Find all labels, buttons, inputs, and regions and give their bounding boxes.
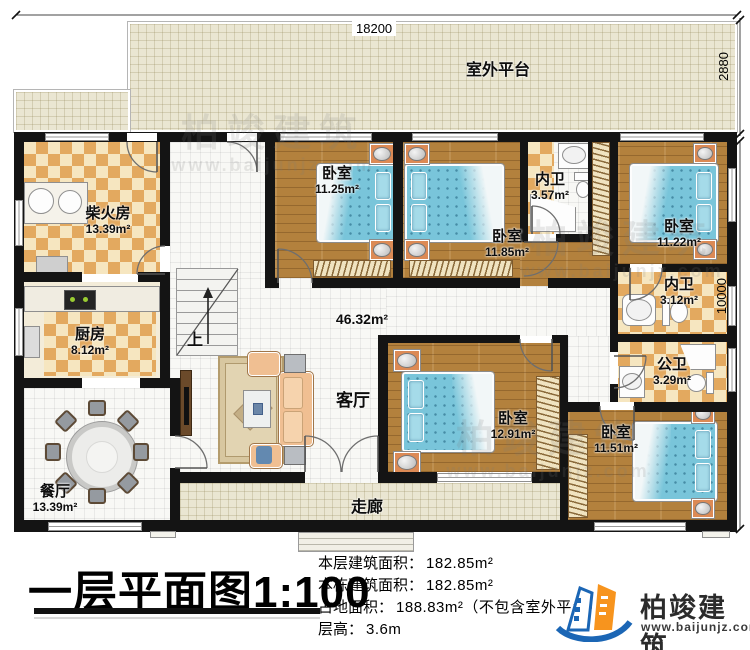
- window: [48, 522, 142, 531]
- dining-chair: [133, 443, 149, 461]
- wall: [265, 142, 275, 288]
- wall: [610, 272, 618, 342]
- sofa: [279, 372, 313, 446]
- wall: [610, 142, 618, 264]
- room-label-gongwei: 公卫 3.29m²: [646, 357, 698, 387]
- dim-top: 18200: [352, 21, 396, 36]
- sink-icon: [626, 299, 652, 321]
- wall: [170, 472, 305, 483]
- wall: [610, 334, 737, 342]
- throw-blanket: [256, 446, 272, 464]
- wall: [548, 278, 610, 288]
- window: [45, 133, 109, 141]
- room-label-bedroom1: 卧室 11.25m²: [298, 166, 376, 196]
- hallway-vertical-floor: [568, 336, 610, 402]
- outdoor-platform-floor-left: [14, 90, 130, 132]
- cooktop-icon: [64, 290, 96, 310]
- side-table: [284, 446, 306, 465]
- room-label-bedroom4: 卧室 12.91m²: [483, 411, 543, 441]
- nightstand: [370, 144, 394, 164]
- dining-chair: [88, 400, 106, 416]
- nightstand: [692, 499, 714, 518]
- window: [728, 286, 736, 326]
- wall: [556, 234, 592, 242]
- door-opening: [227, 133, 257, 141]
- tv-cabinet: [180, 370, 192, 436]
- wall: [588, 142, 592, 234]
- window: [620, 133, 704, 141]
- nightstand: [394, 452, 420, 473]
- nightstand: [394, 350, 420, 371]
- entry-steps: [298, 532, 414, 552]
- room-label-corridor: 走廊: [336, 499, 398, 517]
- stoop: [150, 531, 176, 538]
- room-label-firewood: 柴火房 13.39m²: [62, 206, 154, 236]
- door-opening: [127, 133, 157, 141]
- wall: [160, 142, 170, 246]
- window: [15, 308, 23, 356]
- brand-building-icon: [552, 580, 636, 642]
- room-label-neiwei1: 内卫 3.57m²: [524, 172, 576, 202]
- wall: [170, 378, 180, 436]
- wall: [662, 264, 737, 272]
- window: [728, 348, 736, 392]
- wall: [552, 335, 568, 343]
- wall: [393, 142, 403, 288]
- wardrobe: [409, 260, 513, 277]
- dim-platform-depth: 2880: [716, 52, 731, 81]
- wall: [160, 274, 170, 378]
- nightstand: [370, 240, 394, 260]
- nightstand: [405, 144, 429, 164]
- bed: [402, 372, 494, 452]
- room-label-kitchen: 厨房 8.12m²: [50, 327, 130, 357]
- wall: [140, 378, 170, 388]
- wall: [265, 278, 279, 288]
- wall: [24, 272, 82, 282]
- floor-plan-page: 室外平台: [0, 0, 750, 650]
- stove-ring-icon: [28, 188, 54, 214]
- wardrobe: [592, 142, 610, 256]
- window: [412, 133, 498, 141]
- fridge-icon: [24, 326, 40, 358]
- window: [15, 200, 23, 246]
- wall: [610, 384, 618, 402]
- hallway-floor: [386, 286, 610, 336]
- wall: [568, 402, 600, 412]
- room-label-neiwei2: 内卫 3.12m²: [650, 277, 708, 307]
- armchair: [248, 352, 280, 376]
- room-label-platform: 室外平台: [443, 62, 553, 80]
- wall: [378, 343, 388, 483]
- outdoor-platform-floor: [128, 22, 737, 132]
- wall: [378, 472, 437, 483]
- brand-website: www.baijunjz.com: [641, 620, 750, 634]
- wall: [312, 278, 520, 288]
- room-label-bedroom3: 卧室 11.22m²: [648, 219, 710, 249]
- wall: [610, 342, 618, 352]
- wardrobe: [313, 260, 391, 277]
- wall: [378, 335, 520, 343]
- window: [728, 168, 736, 222]
- toilet-tank: [706, 372, 714, 394]
- room-label-dining: 餐厅 13.39m²: [16, 484, 94, 514]
- wardrobe: [568, 434, 588, 518]
- wall: [532, 472, 568, 483]
- wall: [560, 335, 568, 520]
- nightstand: [694, 144, 716, 163]
- room-name: 室外平台: [443, 62, 553, 80]
- brand-name: 柏竣建筑: [640, 586, 747, 650]
- brand-logo: 柏竣建筑 www.baijunjz.com: [552, 580, 747, 644]
- sink-icon: [622, 373, 642, 390]
- wall: [634, 402, 737, 412]
- room-label-bedroom2: 卧室 11.85m²: [476, 229, 538, 259]
- title-underline-shadow: [34, 617, 320, 619]
- coffee-table: [243, 390, 271, 428]
- room-label-bedroom5: 卧室 11.51m²: [586, 425, 646, 455]
- room-label-living-area: 46.32m²: [320, 312, 404, 328]
- dim-house-depth: 10000: [714, 278, 729, 314]
- entry-hall-floor: [170, 142, 265, 282]
- stairs-up-label: 上: [184, 332, 206, 350]
- title-underline: [34, 608, 320, 614]
- window: [594, 522, 686, 531]
- wall: [610, 264, 630, 272]
- info-line-floor-area: 本层建筑面积：182.85m²: [318, 553, 603, 575]
- stoop: [702, 531, 730, 538]
- room-label-living: 客厅: [320, 391, 386, 410]
- window: [280, 133, 372, 141]
- dining-chair: [45, 443, 61, 461]
- window: [437, 473, 532, 482]
- nightstand: [405, 240, 429, 260]
- sink-icon: [562, 146, 586, 164]
- side-table: [284, 354, 306, 373]
- wall: [24, 378, 82, 388]
